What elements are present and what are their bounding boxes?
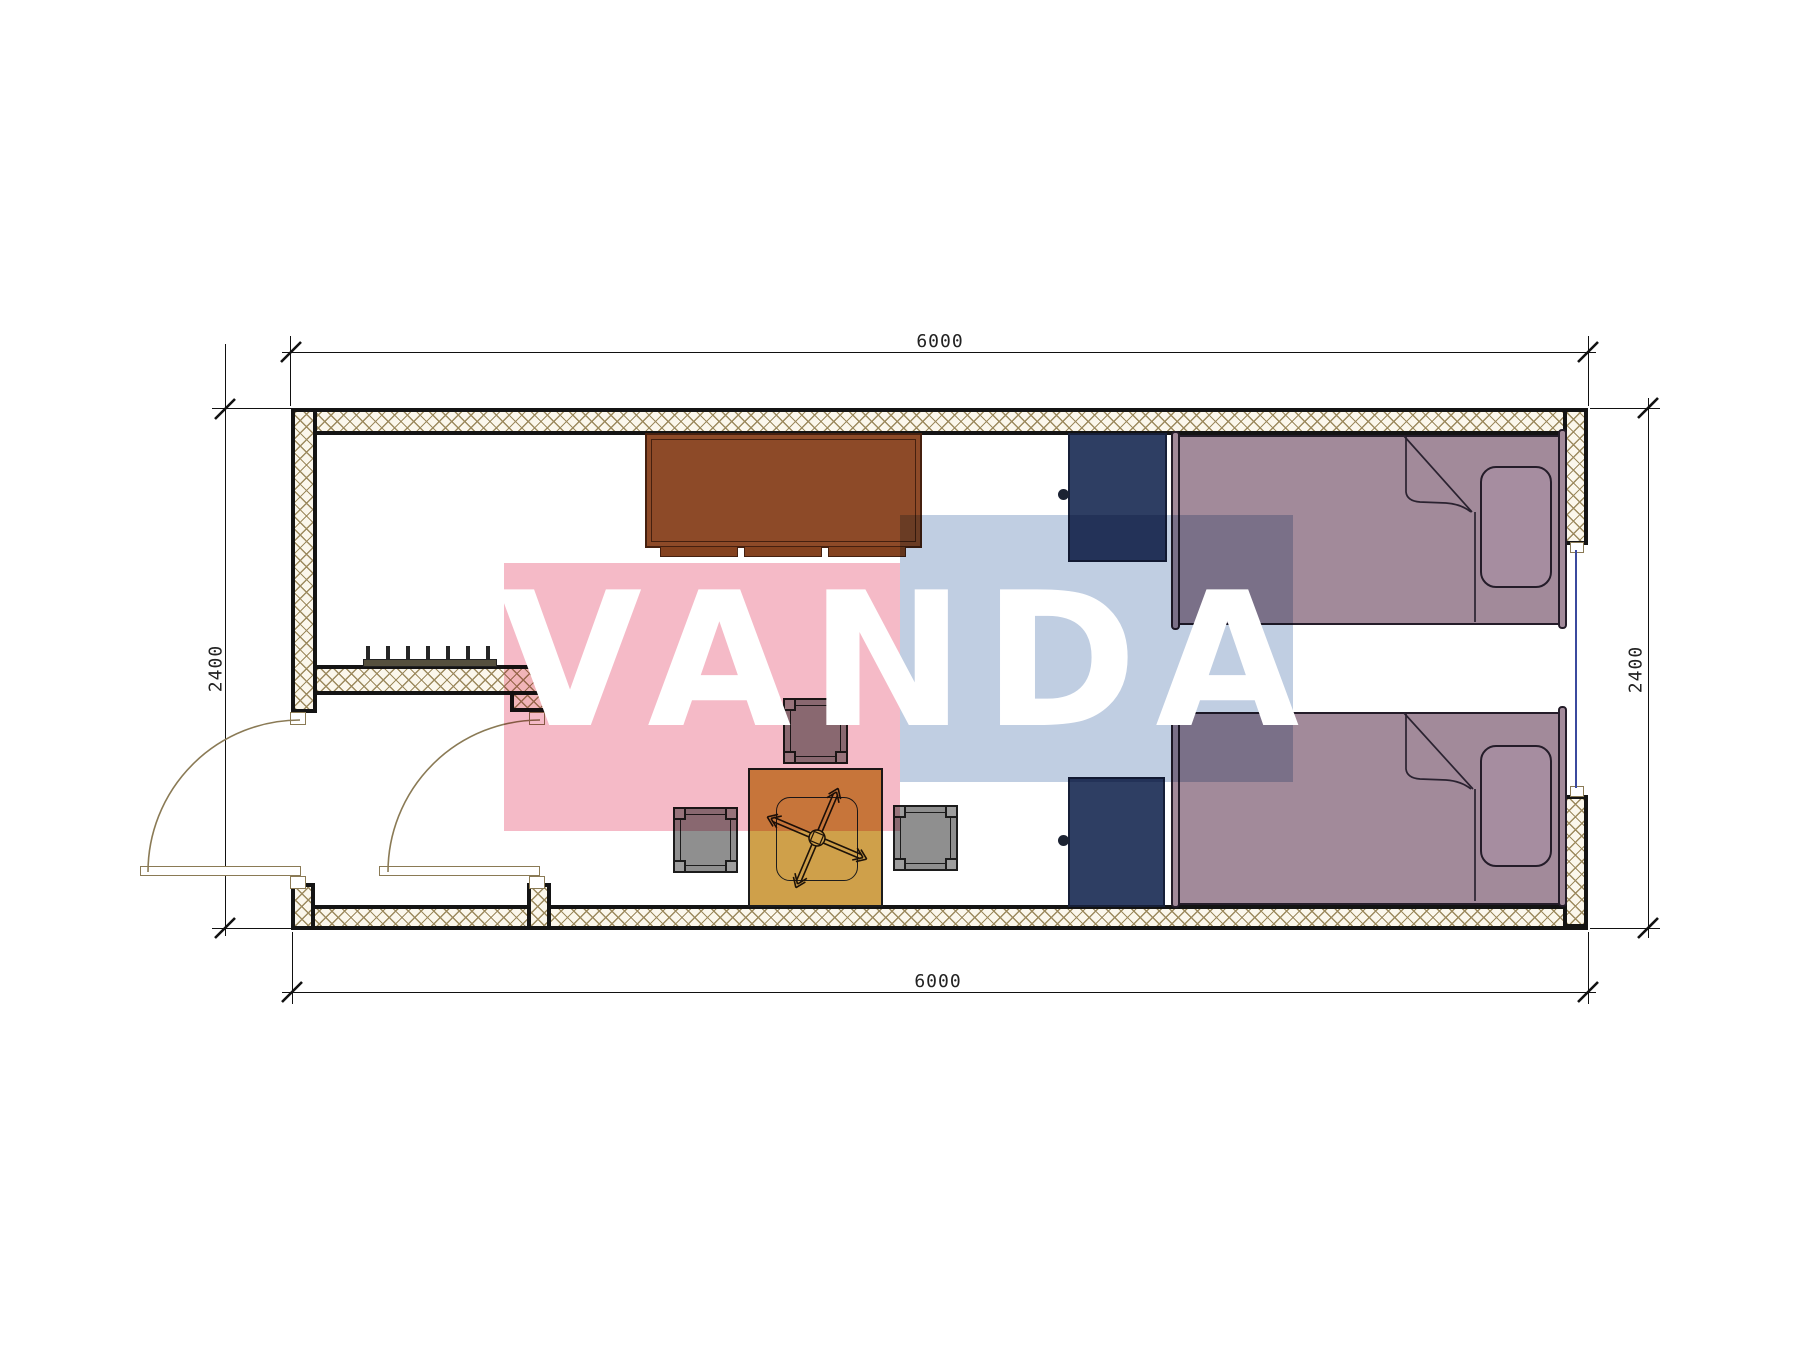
pillow-top bbox=[1480, 466, 1552, 588]
dim-extension bbox=[212, 408, 292, 409]
dim-label-left: 2400 bbox=[206, 629, 227, 709]
dim-line-right bbox=[1648, 398, 1649, 938]
cabinet-bottom bbox=[1068, 777, 1165, 907]
dim-line-top bbox=[282, 352, 1596, 353]
floor-plan-canvas: 6000 6000 2400 2400 VANDA bbox=[0, 0, 1800, 1350]
desk bbox=[645, 433, 922, 548]
radiator-fin bbox=[466, 646, 470, 660]
entry-door-leaf bbox=[140, 866, 301, 876]
radiator-fin bbox=[426, 646, 430, 660]
window-jamb bbox=[1570, 542, 1584, 553]
dim-extension bbox=[292, 932, 293, 1004]
dim-extension bbox=[1590, 928, 1660, 929]
pillow-bottom bbox=[1480, 745, 1552, 867]
cabinet-knob bbox=[1058, 835, 1069, 846]
radiator bbox=[363, 659, 497, 667]
dim-extension bbox=[1590, 408, 1660, 409]
wall-stub-left bbox=[291, 883, 315, 930]
radiator-fin bbox=[366, 646, 370, 660]
stool-right bbox=[893, 805, 958, 871]
door-jamb bbox=[290, 876, 306, 889]
cabinet-knob bbox=[1058, 489, 1069, 500]
wall-bottom bbox=[291, 905, 1588, 930]
dim-line-bottom bbox=[282, 992, 1596, 993]
dim-extension bbox=[1588, 336, 1589, 406]
radiator-fin bbox=[406, 646, 410, 660]
wall-stub-inner bbox=[527, 883, 551, 930]
wall-top bbox=[291, 408, 1588, 435]
radiator-fin bbox=[386, 646, 390, 660]
dim-extension bbox=[1588, 932, 1589, 1004]
stool-seat bbox=[900, 812, 951, 864]
window-jamb bbox=[1570, 786, 1584, 797]
entry-door-swing-arc bbox=[148, 720, 300, 872]
bed-bottom-headboard bbox=[1558, 706, 1567, 907]
door-jamb bbox=[290, 712, 306, 725]
window-glass-line bbox=[1575, 550, 1577, 788]
radiator-fin bbox=[446, 646, 450, 660]
watermark-text: VANDA bbox=[498, 568, 1317, 754]
desk-top-edge bbox=[651, 439, 916, 542]
dim-extension bbox=[212, 928, 292, 929]
dim-label-right: 2400 bbox=[1626, 630, 1647, 710]
bed-top-headboard bbox=[1558, 429, 1567, 629]
door-jamb bbox=[529, 876, 545, 889]
inner-door-leaf bbox=[379, 866, 540, 876]
radiator-fin bbox=[486, 646, 490, 660]
dim-label-bottom: 6000 bbox=[878, 971, 998, 992]
dim-label-top: 6000 bbox=[880, 331, 1000, 352]
dim-extension bbox=[290, 336, 291, 406]
